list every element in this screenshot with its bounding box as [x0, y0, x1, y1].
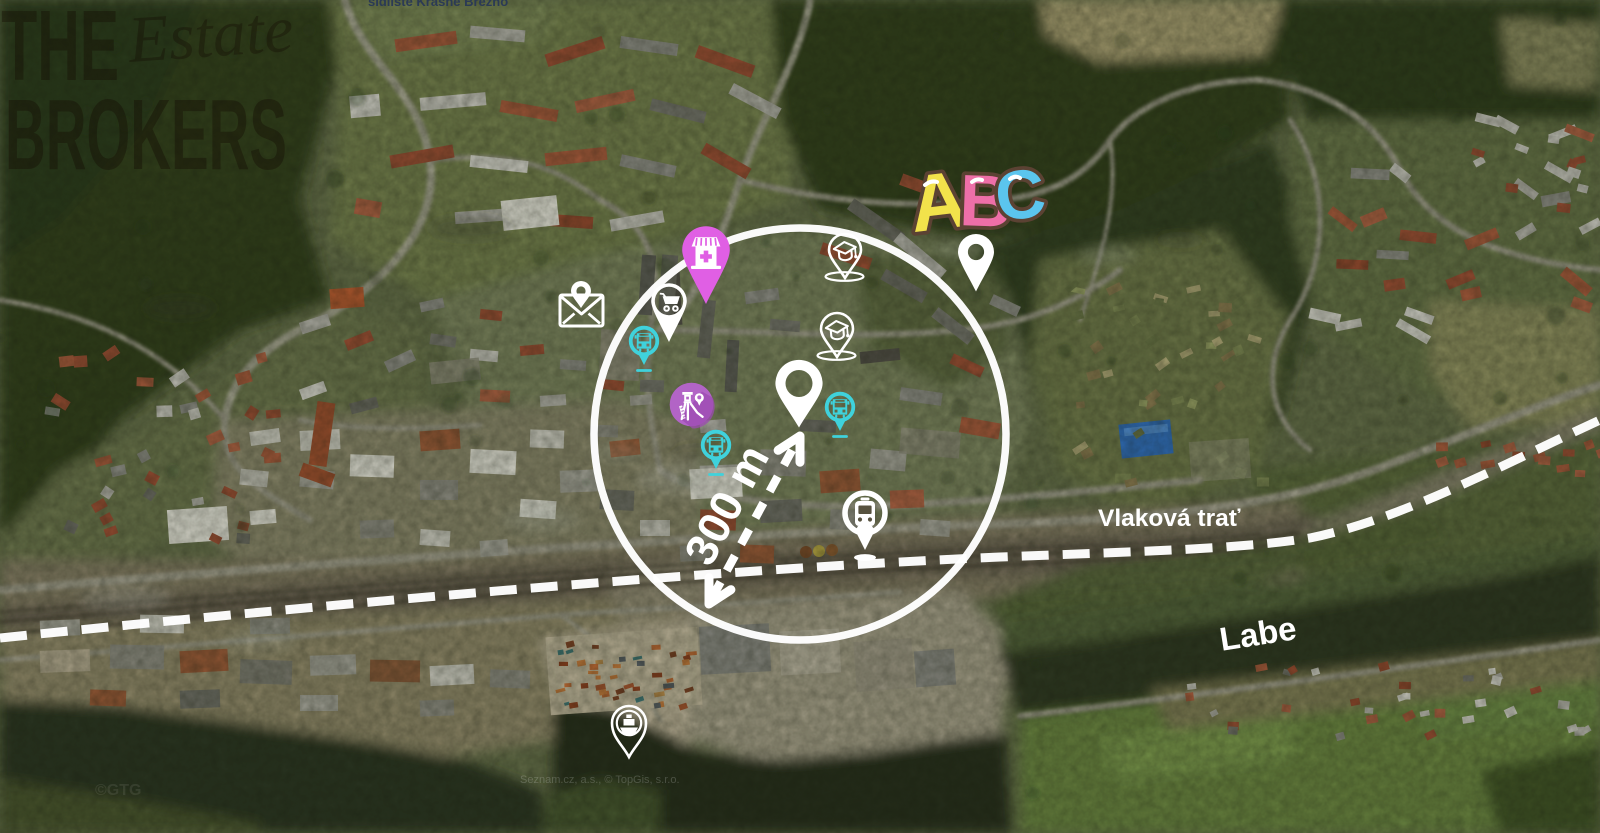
svg-text:sídliště Krásné Březno: sídliště Krásné Březno: [368, 0, 508, 9]
svg-text:C: C: [991, 154, 1050, 237]
svg-text:Seznam.cz, a.s., © TopGis, s.r: Seznam.cz, a.s., © TopGis, s.r.o.: [520, 774, 680, 786]
svg-text:©GTG: ©GTG: [95, 782, 141, 799]
svg-text:BROKERS: BROKERS: [5, 79, 287, 191]
svg-text:Estate: Estate: [125, 0, 296, 77]
svg-text:Vlaková trať: Vlaková trať: [1098, 505, 1241, 532]
